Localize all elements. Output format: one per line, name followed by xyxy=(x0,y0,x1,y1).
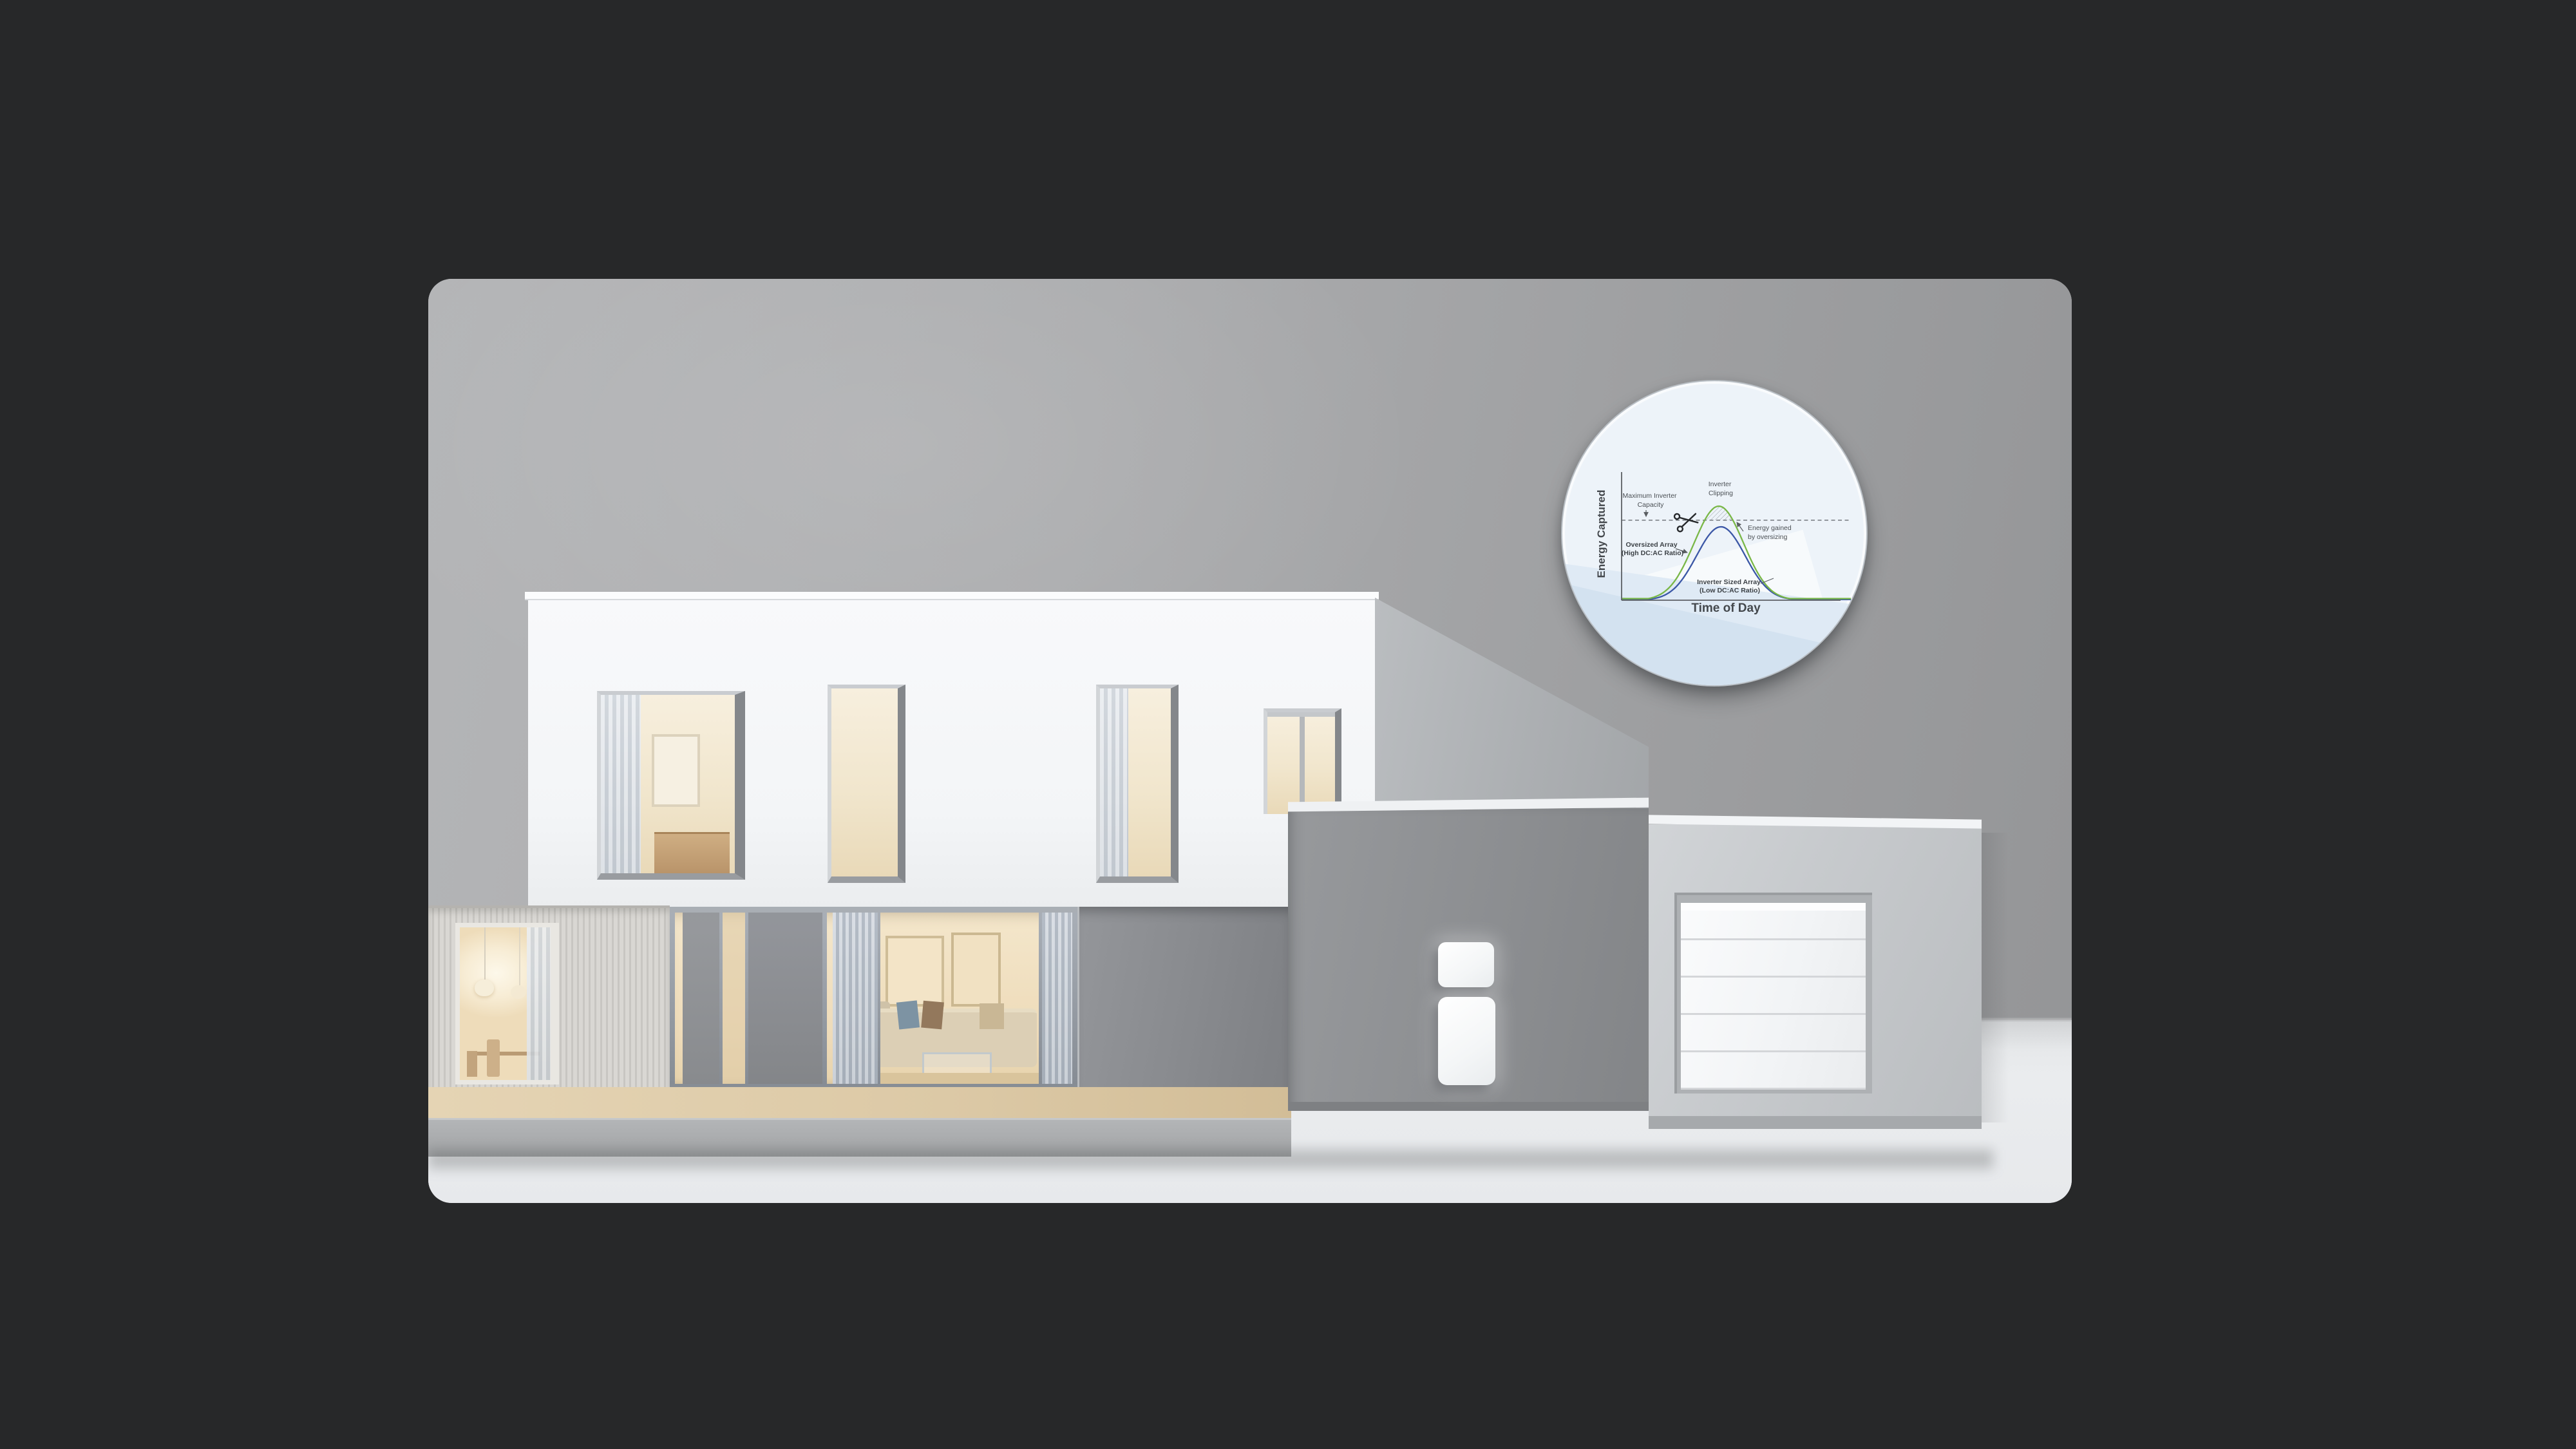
dining-chair xyxy=(487,1039,500,1077)
glazing-top-rail xyxy=(670,907,1077,913)
garage-wall-shadow xyxy=(1982,833,2009,1122)
curtain xyxy=(527,927,551,1080)
house-ground-shadow xyxy=(428,1150,1993,1169)
window-mullion xyxy=(1300,712,1305,814)
curtain xyxy=(1100,688,1128,876)
glazing-mullion xyxy=(719,907,723,1089)
roof-parapet xyxy=(525,592,1379,600)
dining-chair xyxy=(467,1051,477,1077)
curtain xyxy=(833,911,878,1086)
glazing-mullion xyxy=(822,907,827,1089)
garage-door-recess xyxy=(1674,893,1872,1094)
garage-door xyxy=(1681,903,1866,1090)
scissors-icon xyxy=(1674,509,1699,532)
pillow xyxy=(922,1001,944,1030)
inverter-unit xyxy=(1438,942,1494,987)
interior-sliver xyxy=(719,907,745,1089)
clipping-label: Inverter Clipping xyxy=(1709,480,1734,497)
battery-unit xyxy=(1438,997,1495,1085)
pillow xyxy=(896,1001,920,1030)
window-bedroom xyxy=(597,691,745,880)
glazing-mullion xyxy=(878,907,880,1089)
recessed-gray-wall xyxy=(1077,907,1288,1089)
glazing-mullion xyxy=(1039,907,1042,1089)
pendant-lamp xyxy=(511,985,526,999)
curtain xyxy=(1039,911,1075,1086)
dresser xyxy=(654,832,729,873)
wood-deck xyxy=(428,1087,1291,1118)
gained-label: Energy gained by oversizing xyxy=(1748,524,1794,541)
dining-window xyxy=(455,923,559,1084)
curtain xyxy=(601,695,641,873)
glass-panel xyxy=(745,907,822,1089)
window-narrow xyxy=(828,685,905,883)
garage-base xyxy=(1649,1116,1982,1129)
house-photo-card: Maximum Inverter Capacity Inverter Clipp… xyxy=(428,279,2072,1203)
lamp-cord xyxy=(519,927,520,985)
window-middle xyxy=(1096,685,1179,883)
garage-base xyxy=(1288,1102,1649,1111)
glass-panel xyxy=(683,907,719,1089)
window-right xyxy=(1264,708,1341,814)
window-rail xyxy=(1267,712,1335,717)
wall-art xyxy=(951,933,1001,1007)
inverter-clipping-inset: Maximum Inverter Capacity Inverter Clipp… xyxy=(1561,380,1868,687)
y-axis-label: Energy Captured xyxy=(1595,490,1607,578)
wall-art xyxy=(885,936,943,1007)
x-axis-label: Time of Day xyxy=(1691,601,1761,615)
lamp-cord xyxy=(484,927,486,980)
glazing-mullion xyxy=(670,907,675,1089)
glazing-mullion xyxy=(745,907,748,1089)
inverter-clipping-chart: Maximum Inverter Capacity Inverter Clipp… xyxy=(1562,381,1866,685)
inverter-sized-array-label: Inverter Sized Array (Low DC:AC Ratio) xyxy=(1697,578,1763,594)
living-room-glazing xyxy=(670,907,1077,1089)
oversized-array-label: Oversized Array (High DC:AC Ratio) xyxy=(1622,541,1683,557)
glazing-mullion xyxy=(1072,907,1077,1089)
pendant-lamp xyxy=(475,980,494,996)
wall-art xyxy=(652,734,700,807)
pillow xyxy=(980,1003,1004,1029)
max-capacity-label: Maximum Inverter Capacity xyxy=(1623,492,1679,509)
